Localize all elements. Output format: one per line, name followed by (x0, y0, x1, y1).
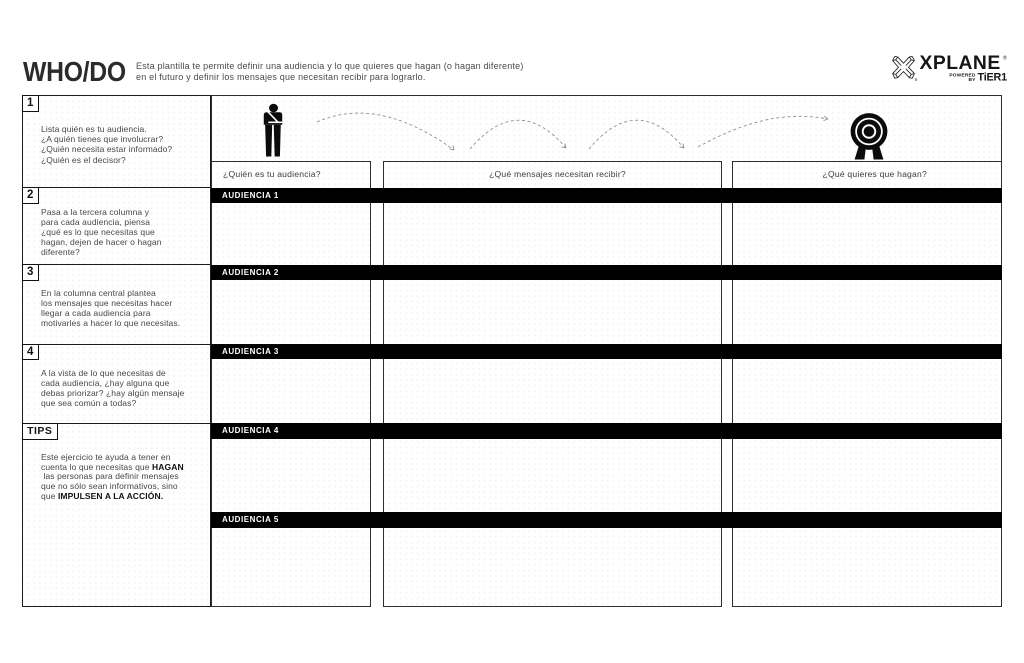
svg-text:®: ® (1003, 55, 1007, 62)
svg-text:BY: BY (969, 77, 977, 83)
svg-text:TiER1: TiER1 (978, 72, 1008, 84)
